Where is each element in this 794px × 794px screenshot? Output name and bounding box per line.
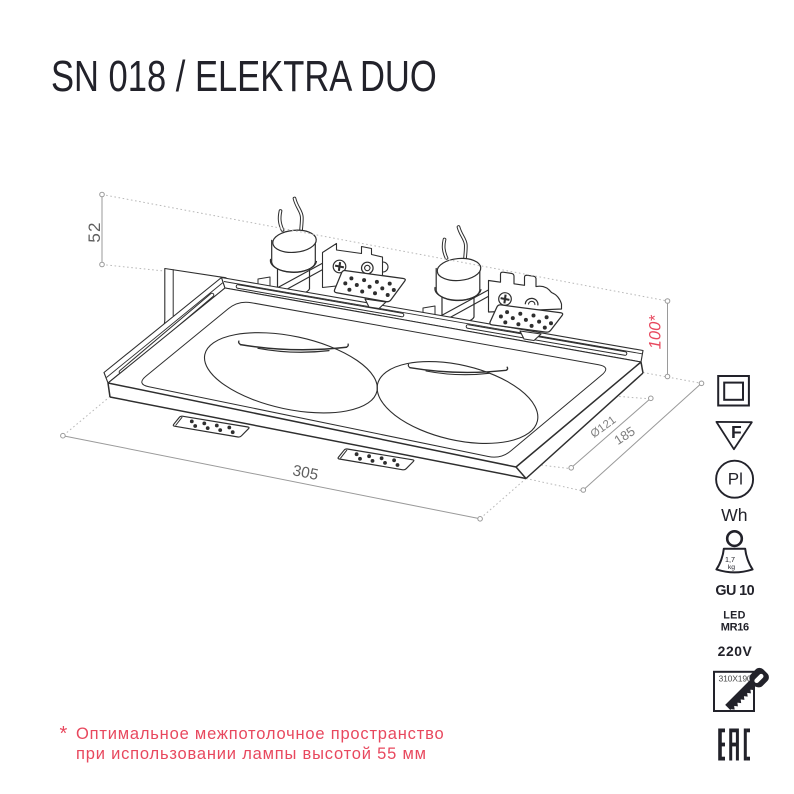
svg-text:1,7: 1,7	[725, 555, 735, 564]
svg-text:GU 10: GU 10	[715, 583, 754, 599]
svg-text:MR16: MR16	[721, 621, 749, 633]
svg-text:305: 305	[291, 462, 320, 484]
svg-text:100*: 100*	[647, 315, 665, 350]
svg-text:kg: kg	[728, 564, 735, 571]
svg-text:F: F	[731, 422, 742, 442]
svg-text:LED: LED	[723, 610, 746, 622]
svg-text:Wh: Wh	[721, 505, 747, 525]
svg-text:310X190: 310X190	[718, 673, 751, 683]
svg-text:220V: 220V	[718, 643, 753, 659]
svg-text:Pl: Pl	[728, 469, 743, 488]
svg-text:52: 52	[85, 221, 104, 242]
